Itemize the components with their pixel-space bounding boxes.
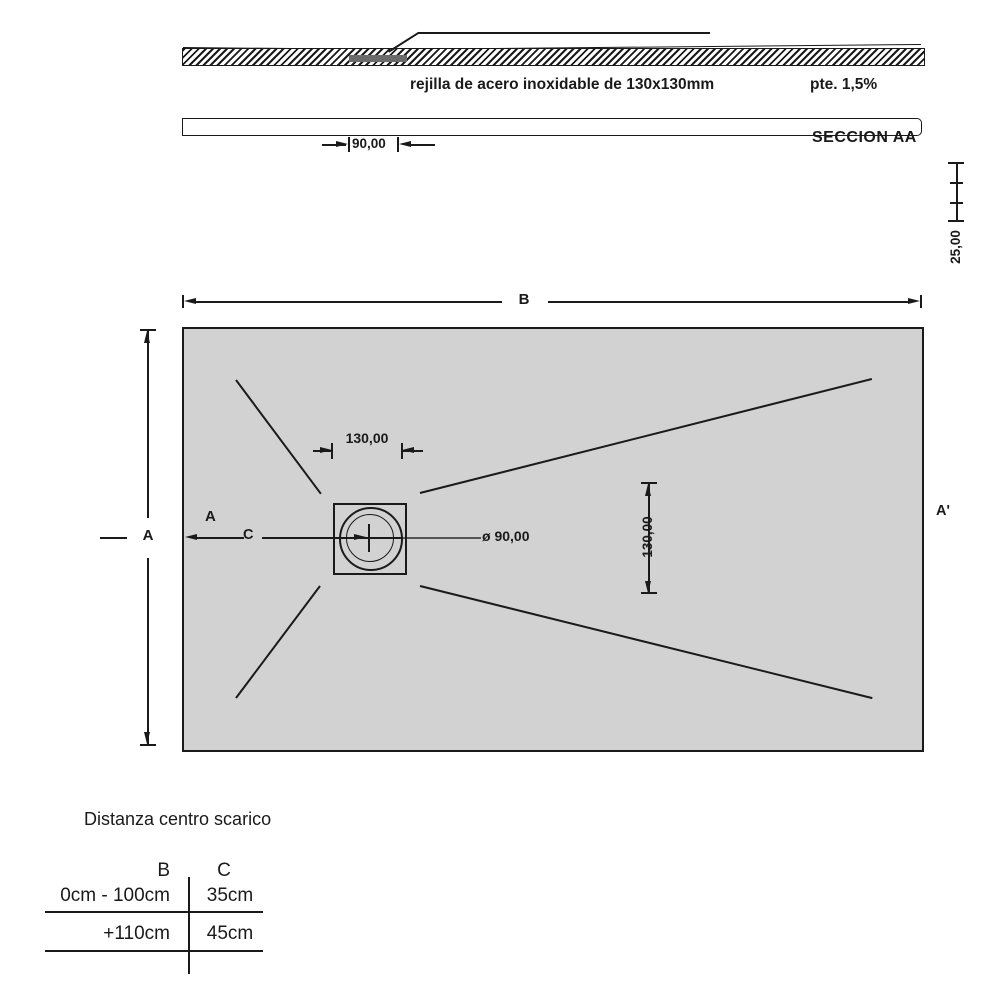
slope-note: pte. 1,5% bbox=[810, 76, 877, 93]
dim-b-tick-right bbox=[920, 295, 922, 308]
section-drain-body bbox=[349, 55, 407, 62]
dim-a-line-top bbox=[147, 330, 149, 518]
table-title: Distanza centro scarico bbox=[84, 810, 271, 830]
dim-90-arrow-right bbox=[399, 141, 411, 147]
table-cell-b2: +110cm bbox=[45, 924, 170, 945]
drain-center-tick bbox=[368, 524, 370, 552]
dim-a-cap-bottom bbox=[140, 744, 156, 746]
dim-b-line-left bbox=[196, 301, 502, 303]
dim-c-label: C bbox=[243, 528, 253, 544]
table-cell-b1: 0cm - 100cm bbox=[45, 886, 170, 907]
cut-label-a-prime: A' bbox=[936, 504, 950, 520]
dim-130v-value: 130,00 bbox=[641, 507, 657, 567]
tray-plan-outline bbox=[182, 327, 924, 752]
dim-b-line-right bbox=[548, 301, 908, 303]
table-row-divider bbox=[45, 950, 263, 952]
cut-label-a: A bbox=[205, 509, 216, 526]
dim-90-tail-right bbox=[411, 144, 435, 146]
dim-25-tick bbox=[950, 202, 963, 204]
tray-profile-outline bbox=[182, 118, 922, 136]
dim-90-arrow-left bbox=[336, 141, 348, 147]
dim-90-tick-left bbox=[348, 137, 350, 152]
table-cell-c1: 35cm bbox=[200, 886, 260, 907]
table-row-divider bbox=[45, 911, 263, 913]
drain-diameter-value: ø 90,00 bbox=[482, 529, 529, 544]
table-cell-c2: 45cm bbox=[200, 924, 260, 945]
dim-b-label: B bbox=[502, 292, 546, 309]
dim-a-line-bottom bbox=[147, 558, 149, 744]
grate-note: rejilla de acero inoxidable de 130x130mm bbox=[410, 76, 714, 93]
section-cut-stub bbox=[100, 537, 127, 539]
drain-center-arrow bbox=[354, 534, 366, 540]
centerline-segment bbox=[196, 537, 244, 539]
centerline-extension bbox=[403, 537, 481, 539]
dim-25-value: 25,00 bbox=[949, 217, 965, 277]
table-column-divider bbox=[188, 877, 190, 974]
leader-line-horizontal bbox=[418, 32, 710, 34]
dim-b-arrow-right bbox=[908, 298, 920, 304]
dim-25-cap-top bbox=[948, 162, 964, 164]
dim-25-tick bbox=[950, 182, 963, 184]
table-header-b: B bbox=[45, 861, 176, 882]
section-view-label: SECCION AA bbox=[812, 129, 917, 147]
dim-25-line bbox=[956, 163, 958, 221]
dim-a-arrow-bottom bbox=[144, 732, 150, 744]
shower-tray-technical-drawing: rejilla de acero inoxidable de 130x130mm… bbox=[0, 0, 1000, 1000]
table-header-c: C bbox=[198, 861, 250, 882]
centerline-segment bbox=[262, 537, 334, 539]
dim-130v-cap-bottom bbox=[641, 592, 657, 594]
dim-b-arrow-left bbox=[184, 298, 196, 304]
dim-130h-value: 130,00 bbox=[332, 431, 402, 446]
dim-130h-tail-right bbox=[402, 450, 423, 452]
section-hatch-bar bbox=[182, 48, 925, 66]
dim-90-value: 90,00 bbox=[352, 137, 386, 152]
dim-a-label: A bbox=[136, 528, 160, 545]
